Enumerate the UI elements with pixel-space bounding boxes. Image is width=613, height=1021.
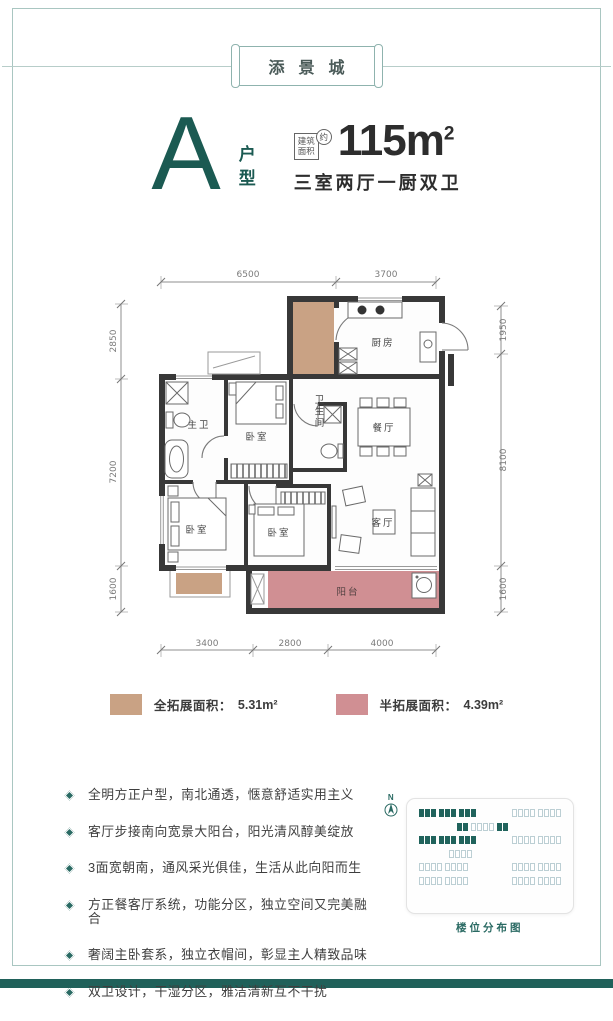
- room-label-bedroom-left: 卧室: [185, 524, 208, 536]
- feature-item: 客厅步接南向宽景大阳台，阳光清风醇美绽放: [66, 825, 368, 839]
- full-extend-swatch: [110, 694, 142, 715]
- building-icon: [457, 823, 468, 831]
- full-extend-value: 5.31m²: [238, 698, 278, 712]
- unit-info: A 户型 建筑 面积 约 115m2 三室两厅一厨双卫: [0, 112, 613, 197]
- building-icon: [538, 809, 561, 817]
- dim-left-2: 7200: [109, 460, 119, 483]
- room-label-master-bath: 主卫: [187, 419, 210, 431]
- feature-item: 方正餐客厅系统，功能分区，独立空间又完美融合: [66, 898, 368, 926]
- project-name-plaque: 添景城: [234, 46, 380, 86]
- room-label-bedroom-top: 卧室: [245, 431, 268, 443]
- feature-text: 全明方正户型，南北通透，惬意舒适实用主义: [88, 788, 354, 802]
- feature-text: 客厅步接南向宽景大阳台，阳光清风醇美绽放: [88, 825, 354, 839]
- north-label: N: [388, 794, 394, 802]
- area-exponent: 2: [444, 124, 454, 145]
- room-label-living: 客厅: [371, 517, 394, 529]
- unit-letter: A: [151, 112, 218, 197]
- building-icon: [419, 863, 442, 871]
- building-icon: [439, 836, 456, 844]
- building-icon: [445, 863, 468, 871]
- building-icon: [449, 850, 472, 858]
- building-icon: [497, 823, 508, 831]
- bottom-section: 全明方正户型，南北通透，惬意舒适实用主义 客厅步接南向宽景大阳台，阳光清风醇美绽…: [66, 788, 579, 1021]
- building-icon: [419, 809, 436, 817]
- plaque-end-cap: [231, 44, 240, 88]
- dim-left-1: 2850: [109, 329, 119, 352]
- sitemap: N: [392, 788, 579, 1021]
- room-label-balcony: 阳台: [336, 586, 359, 598]
- feature-item: 奢阔主卧套系，独立衣帽间，彰显主人精致品味: [66, 948, 368, 962]
- half-extend-swatch: [336, 694, 368, 715]
- area-value: 115m2: [338, 119, 454, 163]
- dim-top-2: 3700: [375, 270, 398, 280]
- map-row: [419, 836, 561, 844]
- site-map-box: [406, 798, 574, 914]
- divider-line: [2, 66, 232, 67]
- dim-right-2: 8100: [499, 448, 509, 471]
- dim-bottom-1: 3400: [196, 639, 219, 649]
- building-icon: [512, 863, 535, 871]
- map-row: [419, 809, 561, 817]
- feature-item: 3面宽朝南，通风采光俱佳，生活从此向阳而生: [66, 861, 368, 875]
- map-row: [419, 863, 561, 871]
- area-approx-badge: 约: [316, 129, 332, 145]
- room-label-bath: 卫生间: [313, 395, 325, 430]
- unit-area-block: 建筑 面积 约 115m2 三室两厅一厨双卫: [294, 119, 462, 195]
- full-extend-label: 全拓展面积：: [154, 695, 232, 714]
- feature-bullet-icon: [65, 864, 75, 874]
- rooms-description: 三室两厅一厨双卫: [294, 169, 462, 195]
- legend-item-full-extend: 全拓展面积： 5.31m²: [110, 694, 278, 715]
- dim-right-1: 1950: [499, 318, 509, 341]
- feature-item: 全明方正户型，南北通透，惬意舒适实用主义: [66, 788, 368, 802]
- area-number: 115m: [338, 116, 444, 165]
- legend-item-half-extend: 半拓展面积： 4.39m²: [336, 694, 504, 715]
- plaque-end-cap: [374, 44, 383, 88]
- unit-type-label: 户型: [233, 145, 258, 193]
- area-tag-line2: 面积: [298, 146, 315, 156]
- feature-bullet-icon: [65, 791, 75, 801]
- feature-text: 奢阔主卧套系，独立衣帽间，彰显主人精致品味: [88, 948, 367, 962]
- compass-icon: [384, 802, 398, 818]
- legend: 全拓展面积： 5.31m² 半拓展面积： 4.39m²: [0, 694, 613, 715]
- building-icon: [512, 836, 535, 844]
- building-icon: [471, 823, 494, 831]
- dim-bottom-3: 4000: [371, 639, 394, 649]
- half-extend-label: 半拓展面积：: [380, 695, 458, 714]
- site-map-caption: 楼位分布图: [406, 920, 574, 935]
- feature-bullet-icon: [65, 900, 75, 910]
- building-icon: [538, 877, 561, 885]
- feature-bullet-icon: [65, 827, 75, 837]
- building-icon: [419, 877, 442, 885]
- project-name: 添景城: [269, 54, 359, 78]
- feature-text: 双卫设计，干湿分区，雅洁清新互不干扰: [88, 985, 327, 999]
- area-tag: 建筑 面积 约: [294, 133, 332, 159]
- feature-bullet-icon: [65, 951, 75, 961]
- area-tag-line1: 建筑: [298, 136, 315, 146]
- building-icon: [439, 809, 456, 817]
- dim-right-3: 1600: [499, 577, 509, 600]
- feature-bullet-icon: [65, 987, 75, 997]
- building-icon: [419, 836, 436, 844]
- building-icon: [512, 877, 535, 885]
- divider-line: [382, 66, 612, 67]
- building-icon: [512, 809, 535, 817]
- map-row: [457, 823, 561, 831]
- building-icon: [459, 836, 476, 844]
- feature-text: 方正餐客厅系统，功能分区，独立空间又完美融合: [88, 898, 368, 926]
- area-tag-box: 建筑 面积: [294, 133, 319, 159]
- building-icon: [538, 863, 561, 871]
- dim-left-3: 1600: [109, 577, 119, 600]
- building-icon: [445, 877, 468, 885]
- building-icon: [538, 836, 561, 844]
- dim-top-1: 6500: [237, 270, 260, 280]
- feature-text: 3面宽朝南，通风采光俱佳，生活从此向阳而生: [88, 861, 362, 875]
- floorplan: 6500 3700 2850 7200 1600 1950 8100 1600 …: [96, 256, 516, 658]
- feature-item: 双卫设计，干湿分区，雅洁清新互不干扰: [66, 985, 368, 999]
- half-extend-value: 4.39m²: [464, 698, 504, 712]
- building-icon: [459, 809, 476, 817]
- room-label-bedroom-mid: 卧室: [267, 527, 290, 539]
- map-row: [419, 877, 561, 885]
- features-list: 全明方正户型，南北通透，惬意舒适实用主义 客厅步接南向宽景大阳台，阳光清风醇美绽…: [66, 788, 368, 1021]
- dim-bottom-2: 2800: [279, 639, 302, 649]
- room-label-kitchen: 厨房: [371, 337, 394, 349]
- header: 添景城: [0, 46, 613, 86]
- map-row: [449, 850, 561, 858]
- room-label-dining: 餐厅: [372, 422, 395, 434]
- north-indicator: N: [384, 794, 398, 818]
